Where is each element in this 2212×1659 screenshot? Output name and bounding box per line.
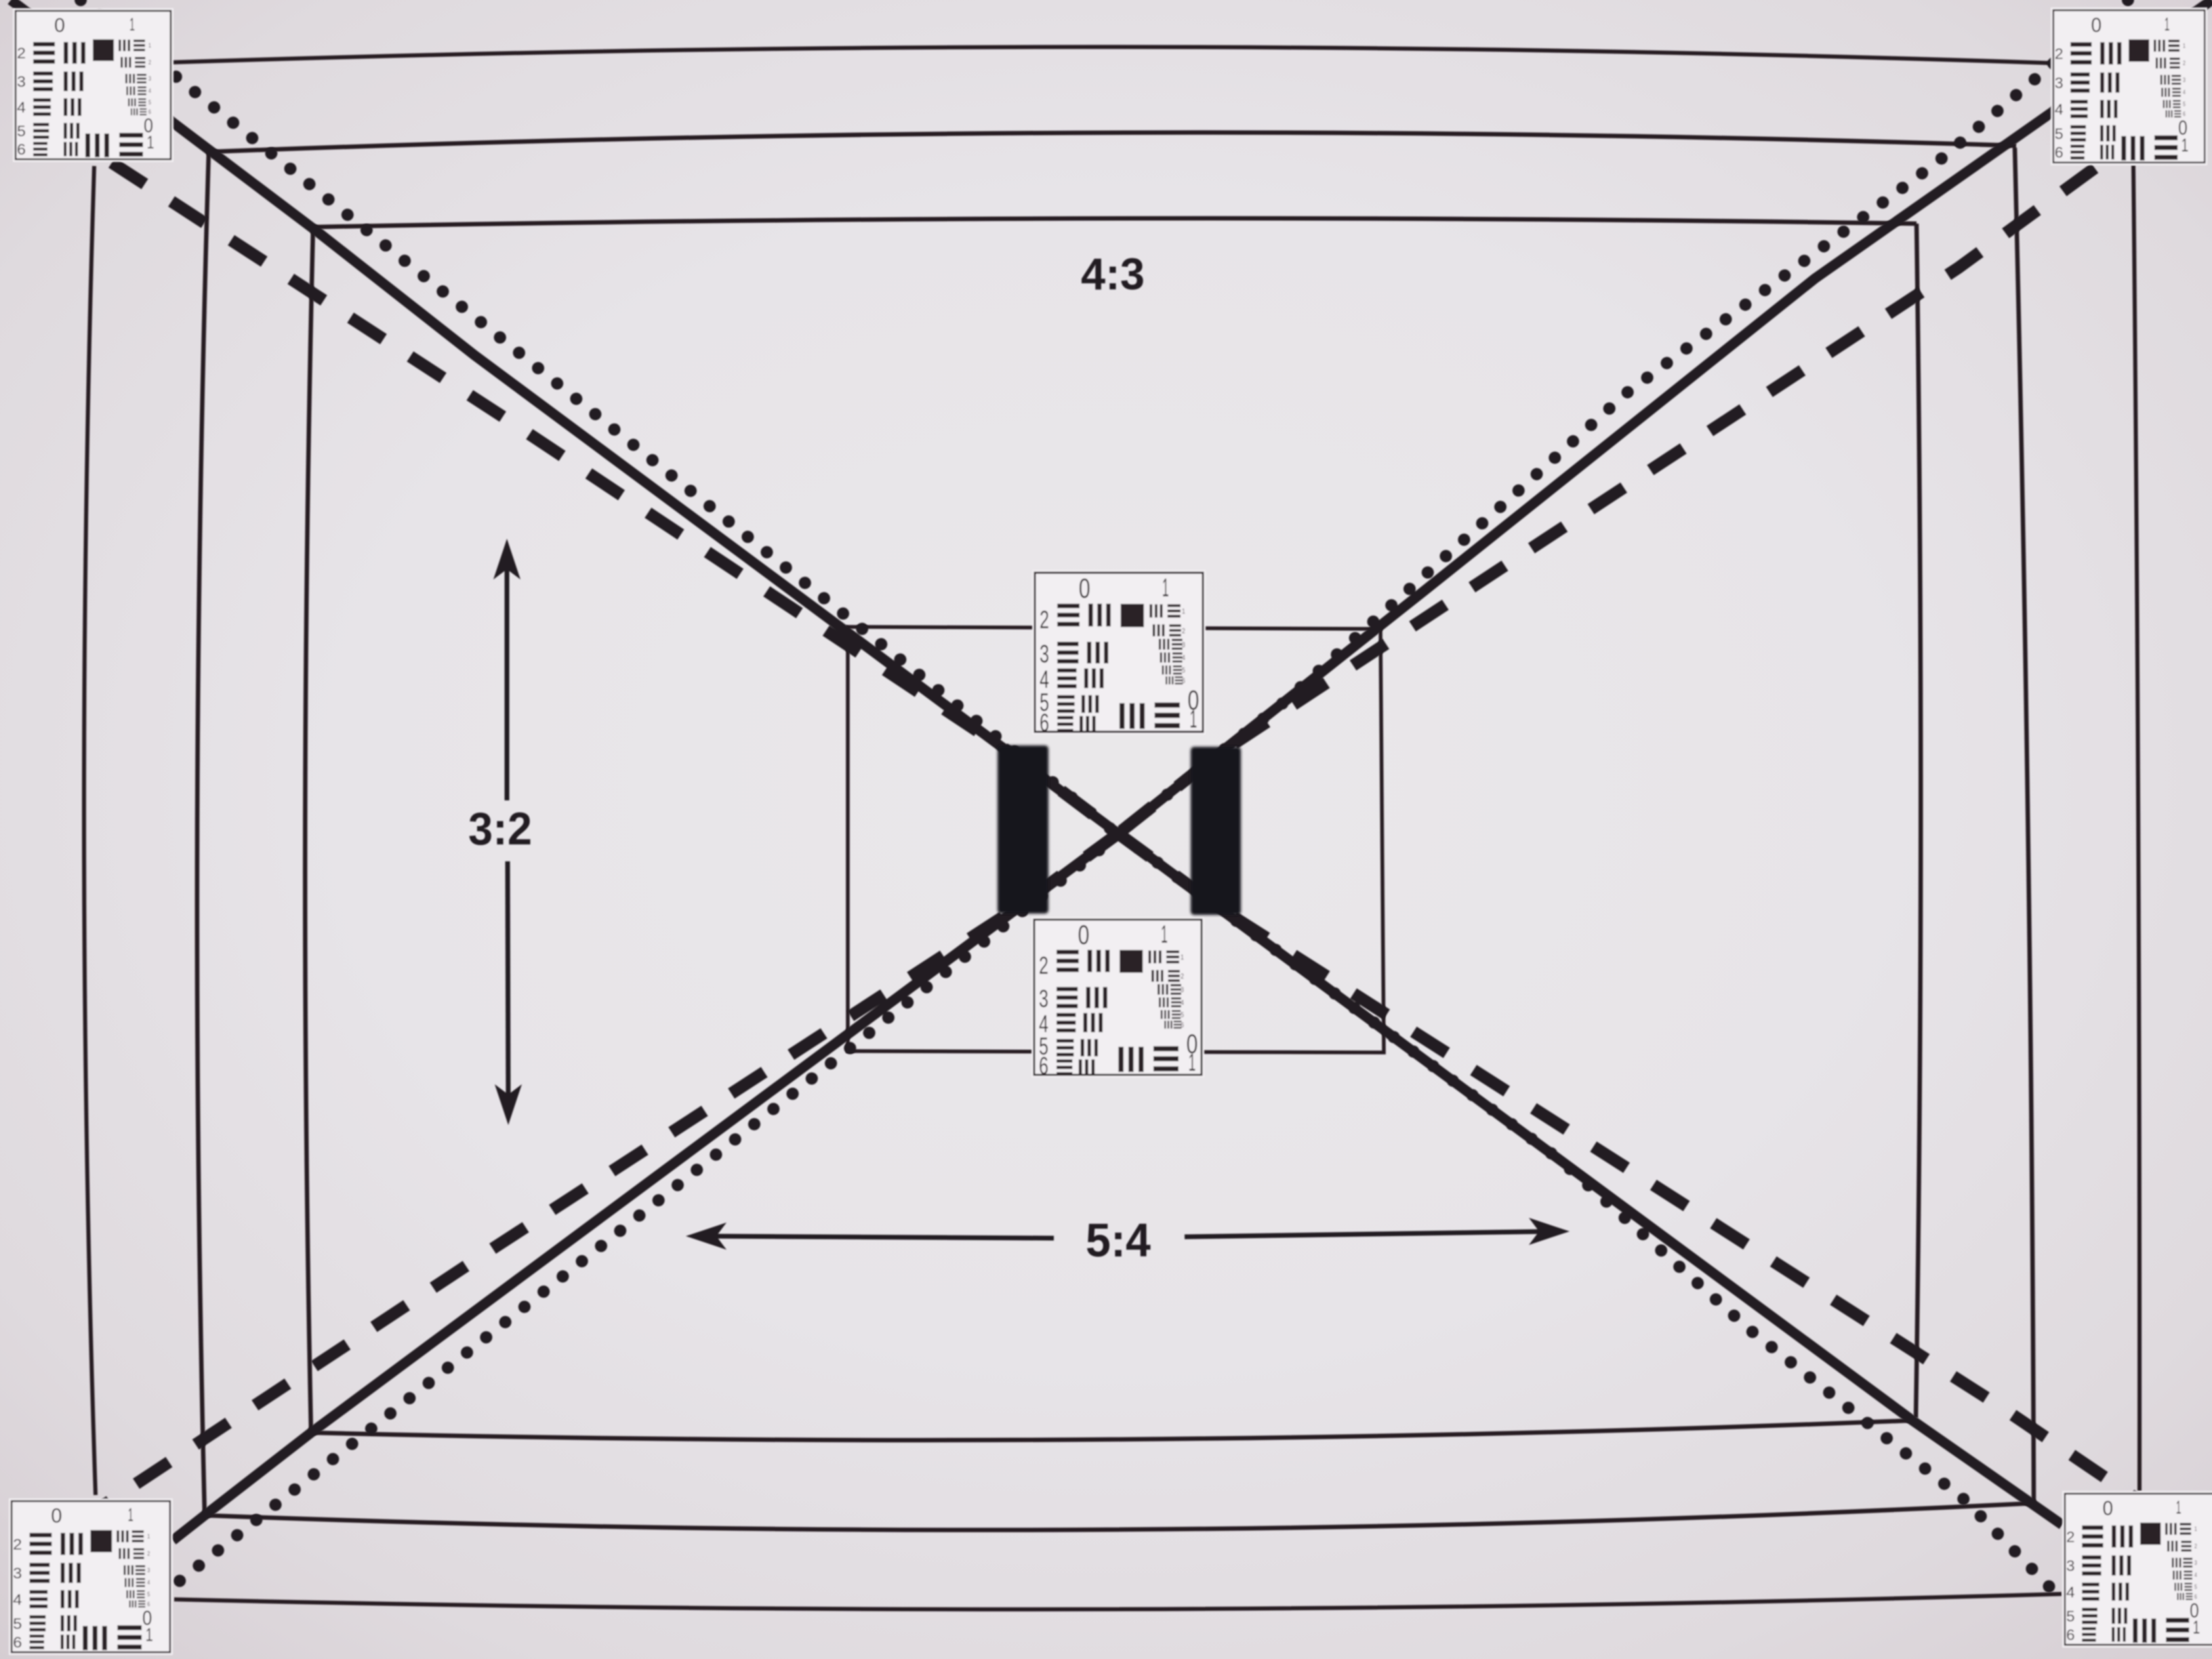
svg-text:5:4: 5:4 (1086, 1214, 1151, 1267)
svg-text:3:2: 3:2 (468, 803, 532, 855)
svg-text:4:3: 4:3 (1081, 249, 1145, 299)
